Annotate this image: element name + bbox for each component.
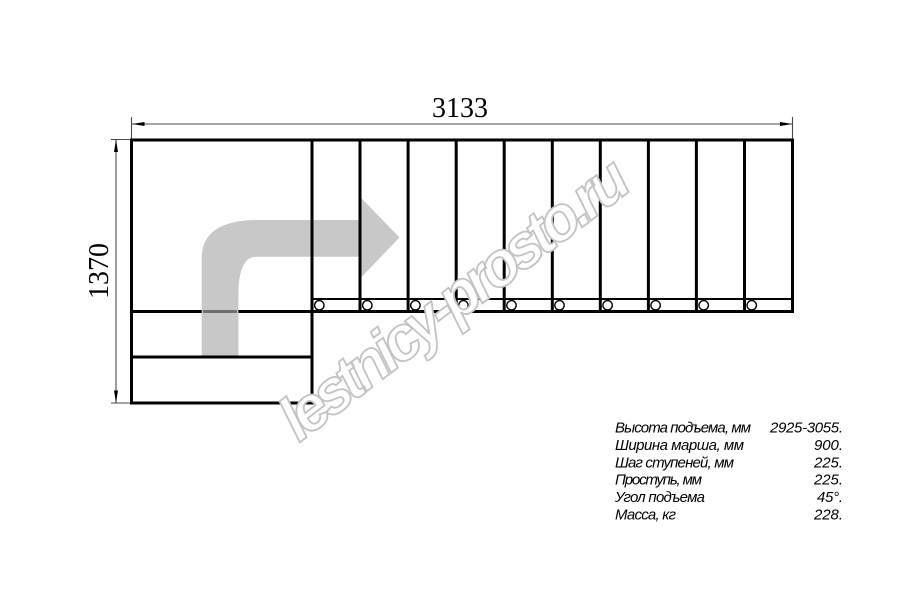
svg-text:900.: 900. [814,437,843,454]
svg-text:45°.: 45°. [817,489,843,506]
svg-text:225.: 225. [813,472,843,489]
svg-text:Шаг ступеней, мм: Шаг ступеней, мм [615,454,734,471]
svg-text:Масса, кг: Масса, кг [615,507,677,524]
svg-text:3133: 3133 [432,93,488,124]
svg-text:Ширина марша, мм: Ширина марша, мм [615,437,744,454]
svg-text:1370: 1370 [84,243,115,299]
svg-text:2925-3055.: 2925-3055. [769,420,843,437]
svg-text:Проступь, мм: Проступь, мм [615,472,702,489]
svg-text:228.: 228. [813,507,843,524]
svg-text:Угол подъема: Угол подъема [614,489,705,506]
svg-text:Высота подъема, мм: Высота подъема, мм [615,420,751,437]
svg-text:225.: 225. [813,454,843,471]
